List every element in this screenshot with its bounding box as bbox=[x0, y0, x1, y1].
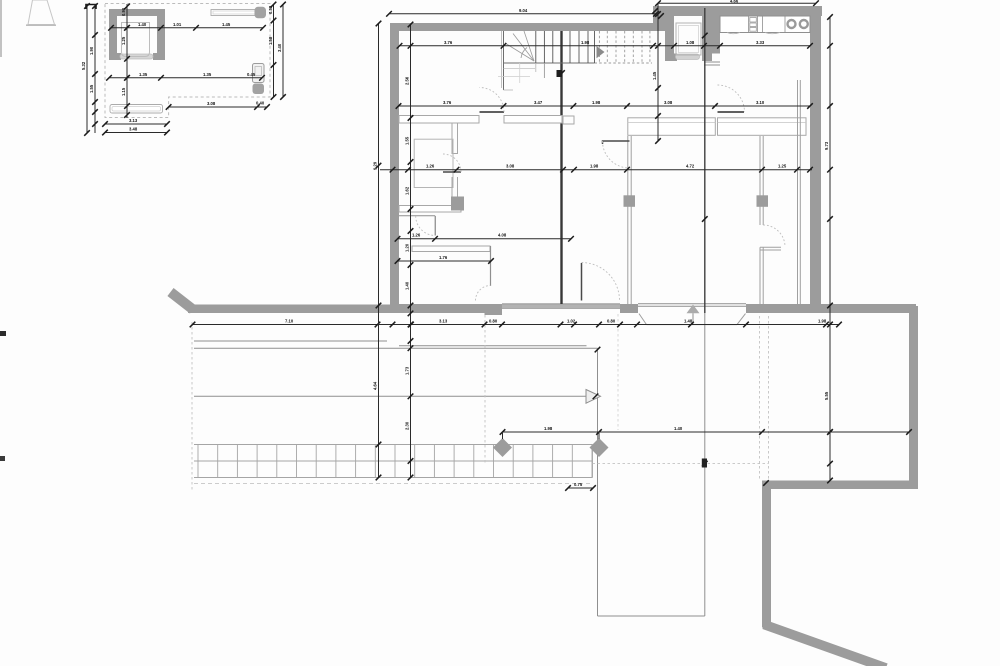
svg-text:4.64: 4.64 bbox=[373, 381, 378, 390]
svg-text:0.45: 0.45 bbox=[247, 72, 256, 77]
svg-text:5.55: 5.55 bbox=[824, 391, 829, 400]
svg-text:1.01: 1.01 bbox=[173, 22, 182, 27]
svg-text:3.40: 3.40 bbox=[277, 43, 282, 52]
svg-text:1.98: 1.98 bbox=[818, 319, 827, 324]
svg-text:9.04: 9.04 bbox=[519, 8, 528, 13]
svg-text:0.75: 0.75 bbox=[574, 482, 583, 487]
svg-text:1.40: 1.40 bbox=[674, 426, 683, 431]
svg-text:3.13: 3.13 bbox=[129, 118, 138, 123]
svg-text:0.58: 0.58 bbox=[268, 5, 273, 14]
svg-text:1.15: 1.15 bbox=[121, 87, 126, 96]
svg-text:1.58: 1.58 bbox=[268, 36, 273, 45]
svg-text:2.30: 2.30 bbox=[405, 421, 410, 430]
svg-text:3.48: 3.48 bbox=[129, 127, 138, 132]
svg-text:1.26: 1.26 bbox=[426, 164, 435, 169]
svg-text:1.98: 1.98 bbox=[592, 100, 601, 105]
svg-text:1.26: 1.26 bbox=[412, 233, 421, 238]
svg-text:1.98: 1.98 bbox=[544, 426, 553, 431]
svg-text:4.66: 4.66 bbox=[730, 0, 739, 4]
svg-text:9.29: 9.29 bbox=[373, 161, 378, 170]
svg-text:3.08: 3.08 bbox=[207, 101, 216, 106]
svg-text:9.73: 9.73 bbox=[824, 141, 829, 150]
svg-text:1.62: 1.62 bbox=[405, 186, 410, 195]
svg-text:3.10: 3.10 bbox=[756, 100, 765, 105]
svg-text:3.13: 3.13 bbox=[439, 319, 448, 324]
svg-text:7.10: 7.10 bbox=[285, 319, 294, 324]
svg-text:1.25: 1.25 bbox=[121, 36, 126, 45]
svg-text:3.47: 3.47 bbox=[534, 100, 543, 105]
svg-text:1.35: 1.35 bbox=[203, 72, 212, 77]
svg-text:1.98: 1.98 bbox=[581, 40, 590, 45]
svg-text:1.08: 1.08 bbox=[686, 40, 695, 45]
svg-text:1.45: 1.45 bbox=[222, 22, 231, 27]
svg-text:1.20: 1.20 bbox=[405, 243, 410, 252]
svg-text:0.80: 0.80 bbox=[607, 319, 616, 324]
svg-text:1.35: 1.35 bbox=[139, 72, 148, 77]
svg-text:4.08: 4.08 bbox=[498, 233, 507, 238]
svg-text:1.25: 1.25 bbox=[778, 164, 787, 169]
svg-text:1.45: 1.45 bbox=[652, 71, 657, 80]
svg-text:3.08: 3.08 bbox=[664, 100, 673, 105]
svg-text:1.76: 1.76 bbox=[439, 255, 448, 260]
svg-text:0.40: 0.40 bbox=[256, 101, 265, 106]
svg-text:2.56: 2.56 bbox=[405, 76, 410, 85]
svg-text:1.55: 1.55 bbox=[89, 84, 94, 93]
svg-text:0.90: 0.90 bbox=[121, 7, 126, 16]
svg-text:5.32: 5.32 bbox=[81, 61, 86, 70]
svg-text:1.90: 1.90 bbox=[89, 46, 94, 55]
svg-text:3.76: 3.76 bbox=[443, 100, 452, 105]
svg-text:1.02: 1.02 bbox=[567, 319, 576, 324]
svg-text:4.72: 4.72 bbox=[686, 164, 695, 169]
svg-text:1.73: 1.73 bbox=[405, 366, 410, 375]
svg-text:1.55: 1.55 bbox=[405, 136, 410, 145]
svg-text:1.98: 1.98 bbox=[590, 164, 599, 169]
svg-text:1.40: 1.40 bbox=[138, 22, 147, 27]
svg-text:3.76: 3.76 bbox=[444, 40, 453, 45]
svg-text:3.08: 3.08 bbox=[506, 164, 515, 169]
svg-text:1.48: 1.48 bbox=[684, 319, 693, 324]
svg-text:0.80: 0.80 bbox=[489, 319, 498, 324]
svg-text:3.33: 3.33 bbox=[756, 40, 765, 45]
svg-text:1.40: 1.40 bbox=[405, 281, 410, 290]
